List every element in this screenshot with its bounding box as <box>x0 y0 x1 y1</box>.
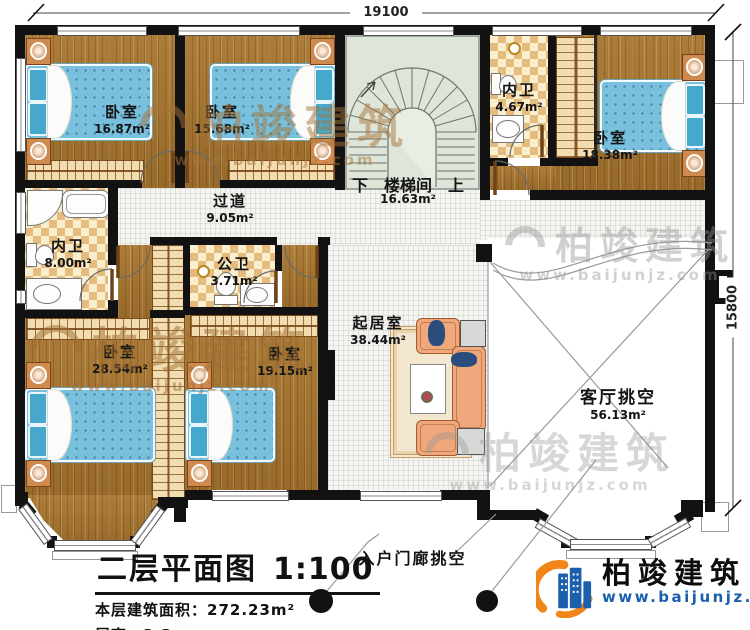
nightstand <box>26 138 51 165</box>
bay-bl-wall-r2 <box>174 497 186 522</box>
room-label-bedroom-bl: 卧室 28.54m² <box>70 344 170 376</box>
room-label-living-void: 客厅挑空 56.13m² <box>558 388 678 422</box>
bay-liv-corner-block <box>681 500 703 517</box>
sink <box>246 287 268 303</box>
closet-bed-bl-top <box>26 318 150 340</box>
nightstand <box>310 138 335 165</box>
blanket-fold <box>661 81 686 151</box>
side-table <box>460 320 486 347</box>
room-label-living: 起居室 38.44m² <box>328 315 428 347</box>
window-living-bottom <box>360 491 442 501</box>
closet-bed-bm-top <box>190 315 318 337</box>
window-top-bed-tm <box>178 26 300 36</box>
coffee-table <box>410 364 446 414</box>
window-top-bed-tr <box>600 26 692 36</box>
window-left-bath-2 <box>16 290 26 304</box>
brand-logo: 柏竣建筑 www.baijunjz.com <box>536 558 750 618</box>
floor-bedroom-bl-entry <box>118 245 152 320</box>
wall-bed-tl-bottom <box>15 180 142 188</box>
wall-bath-left-bottom-a <box>15 310 118 318</box>
plan-scale: 1:100 <box>273 552 374 587</box>
floor-upper-right-strip <box>480 200 715 240</box>
wall-corridor-bottom-b <box>318 237 330 245</box>
wall-bed-tm-stair <box>335 35 345 190</box>
void-column <box>476 244 492 262</box>
pillow <box>28 425 48 458</box>
floor-plan: 19100 15800 卧室 16.87m² 卧室 15.68m² 卧室 18.… <box>0 0 750 630</box>
wall-bed-tm-bottom <box>220 180 335 188</box>
title-block: 二层平面图1:100 本层建筑面积：272.23m² 层高：3.3m <box>95 544 380 630</box>
room-label-bath-left: 内卫 8.00m² <box>18 238 118 270</box>
nightstand <box>682 150 707 177</box>
pillow <box>685 116 705 148</box>
bed-bedroom-bl <box>25 388 155 462</box>
floor-area-line: 本层建筑面积：272.23m² <box>95 599 380 620</box>
floor-height-line: 层高：3.3m <box>95 624 380 630</box>
wall-bed-tr-bottom <box>530 190 715 200</box>
toilet-tank <box>214 295 238 305</box>
stair-area: 16.63m² <box>352 192 464 206</box>
wall-bath-left-bottom-b <box>150 310 185 318</box>
room-label-bedroom-tl: 卧室 16.87m² <box>72 104 172 136</box>
room-label-bedroom-tr: 卧室 18.38m² <box>560 130 660 162</box>
blanket-fold <box>47 389 72 461</box>
pillow <box>685 84 705 116</box>
bed-bedroom-bm <box>186 388 275 462</box>
stair-drawing <box>345 35 480 190</box>
plan-title: 二层平面图1:100 <box>95 544 380 595</box>
floor-bedroom-tr-strip <box>490 166 556 190</box>
blanket-fold <box>208 389 233 461</box>
dimension-top: 19100 <box>350 5 422 21</box>
room-label-bedroom-bm: 卧室 19.15m² <box>235 346 335 378</box>
room-label-bath-public: 公卫 3.71m² <box>184 256 284 288</box>
window-left-bed-tl <box>16 58 26 152</box>
brand-logo-icon <box>536 558 594 618</box>
window-bed-bm-bottom <box>212 491 289 501</box>
wall-right <box>705 25 715 512</box>
brand-name: 柏竣建筑 <box>602 558 750 588</box>
bathtub <box>62 190 110 218</box>
pillow <box>314 102 334 136</box>
flower-decor <box>421 391 433 403</box>
wall-corridor-bottom-a <box>150 237 277 245</box>
pillow <box>28 68 48 102</box>
towel-ring <box>508 42 521 55</box>
room-label-bedroom-tm: 卧室 15.68m² <box>172 104 272 136</box>
room-label-corridor: 过道 9.05m² <box>180 193 280 225</box>
wall-bath-tr-bottom-a <box>490 158 508 166</box>
nightstand <box>26 38 51 65</box>
nightstand <box>26 460 51 487</box>
sink <box>33 284 61 304</box>
armchair-bottom <box>416 420 460 456</box>
wall-living-bottom-a <box>330 490 360 500</box>
person <box>428 320 445 346</box>
pillow <box>314 68 334 102</box>
window-left-bath <box>16 192 26 234</box>
window-top-bath-tr <box>492 26 582 36</box>
floor-vestibule <box>282 245 318 307</box>
blanket-fold <box>290 65 315 139</box>
nightstand <box>26 362 51 389</box>
nightstand <box>187 460 212 487</box>
dimension-right: 15800 <box>726 278 741 338</box>
room-label-bath-tr: 内卫 4.67m² <box>479 82 559 114</box>
sink <box>496 120 520 138</box>
bay-liv-window-front <box>570 539 652 550</box>
nightstand <box>310 38 335 65</box>
pillow <box>189 425 209 458</box>
blanket-fold <box>47 65 72 139</box>
floor-living-void <box>488 238 705 490</box>
pillow <box>28 392 48 425</box>
wall-bath-left-right-b <box>108 300 118 310</box>
person <box>451 352 477 367</box>
wall-bed-bm-bottom-b <box>287 490 330 500</box>
wall-stair-bath <box>480 35 490 200</box>
wall-bed-bm-bottom-a <box>185 490 212 500</box>
bay-liv-window-r <box>647 517 691 548</box>
pillow <box>189 392 209 425</box>
brand-site: www.baijunjz.com <box>602 588 750 606</box>
pillow <box>28 102 48 136</box>
side-table <box>457 428 485 455</box>
wall-gongwei-bottom <box>183 307 320 315</box>
nightstand <box>187 362 212 389</box>
nightstand <box>682 54 707 81</box>
window-top-stair <box>363 26 454 36</box>
window-top-bed-tl <box>57 26 147 36</box>
stairwell <box>345 35 480 190</box>
